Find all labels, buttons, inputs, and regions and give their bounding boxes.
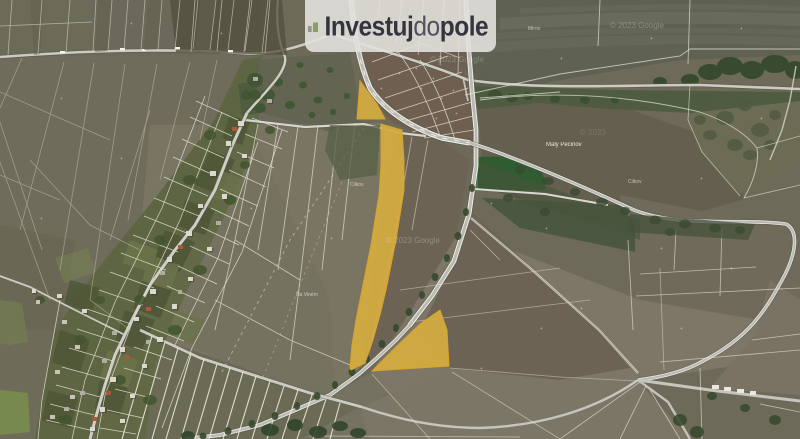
svg-text:+: + <box>560 56 563 61</box>
svg-text:+: + <box>415 66 418 71</box>
svg-text:Malý Pecinov: Malý Pecinov <box>546 142 582 148</box>
svg-text:Cilkov: Cilkov <box>350 182 364 188</box>
svg-text:+: + <box>250 206 253 211</box>
svg-text:+: + <box>40 216 43 221</box>
svg-text:Cilkov: Cilkov <box>628 179 642 185</box>
svg-text:+: + <box>220 31 223 36</box>
svg-text:+: + <box>398 71 401 76</box>
svg-text:+: + <box>580 306 583 311</box>
svg-text:+: + <box>700 176 703 181</box>
svg-text:+: + <box>660 246 663 251</box>
svg-text:+: + <box>452 88 455 93</box>
svg-text:Mirov: Mirov <box>528 26 541 32</box>
svg-text:+: + <box>740 26 743 31</box>
svg-text:+: + <box>545 226 548 231</box>
svg-text:+: + <box>760 116 763 121</box>
svg-text:+: + <box>380 86 383 91</box>
svg-text:+: + <box>330 236 333 241</box>
svg-text:© 2023 Google: © 2023 Google <box>386 236 440 245</box>
svg-text:+: + <box>420 86 423 91</box>
svg-text:+: + <box>440 96 443 101</box>
svg-text:+: + <box>435 116 438 121</box>
svg-text:+: + <box>130 21 133 26</box>
svg-text:+: + <box>432 76 435 81</box>
svg-text:+: + <box>680 326 683 331</box>
svg-text:© 2023 Google: © 2023 Google <box>610 21 664 30</box>
svg-text:+: + <box>480 366 483 371</box>
svg-text:+: + <box>490 201 493 206</box>
svg-text:+: + <box>455 111 458 116</box>
svg-text:+: + <box>540 326 543 331</box>
svg-text:+: + <box>650 36 653 41</box>
svg-text:© 2023 Google: © 2023 Google <box>430 55 484 64</box>
svg-text:Investujdopole: Investujdopole <box>325 10 489 42</box>
svg-text:+: + <box>120 156 123 161</box>
svg-text:© 2023: © 2023 <box>580 128 606 137</box>
svg-text:Na Viném: Na Viném <box>296 292 318 298</box>
svg-text:+: + <box>60 96 63 101</box>
svg-text:+: + <box>730 266 733 271</box>
